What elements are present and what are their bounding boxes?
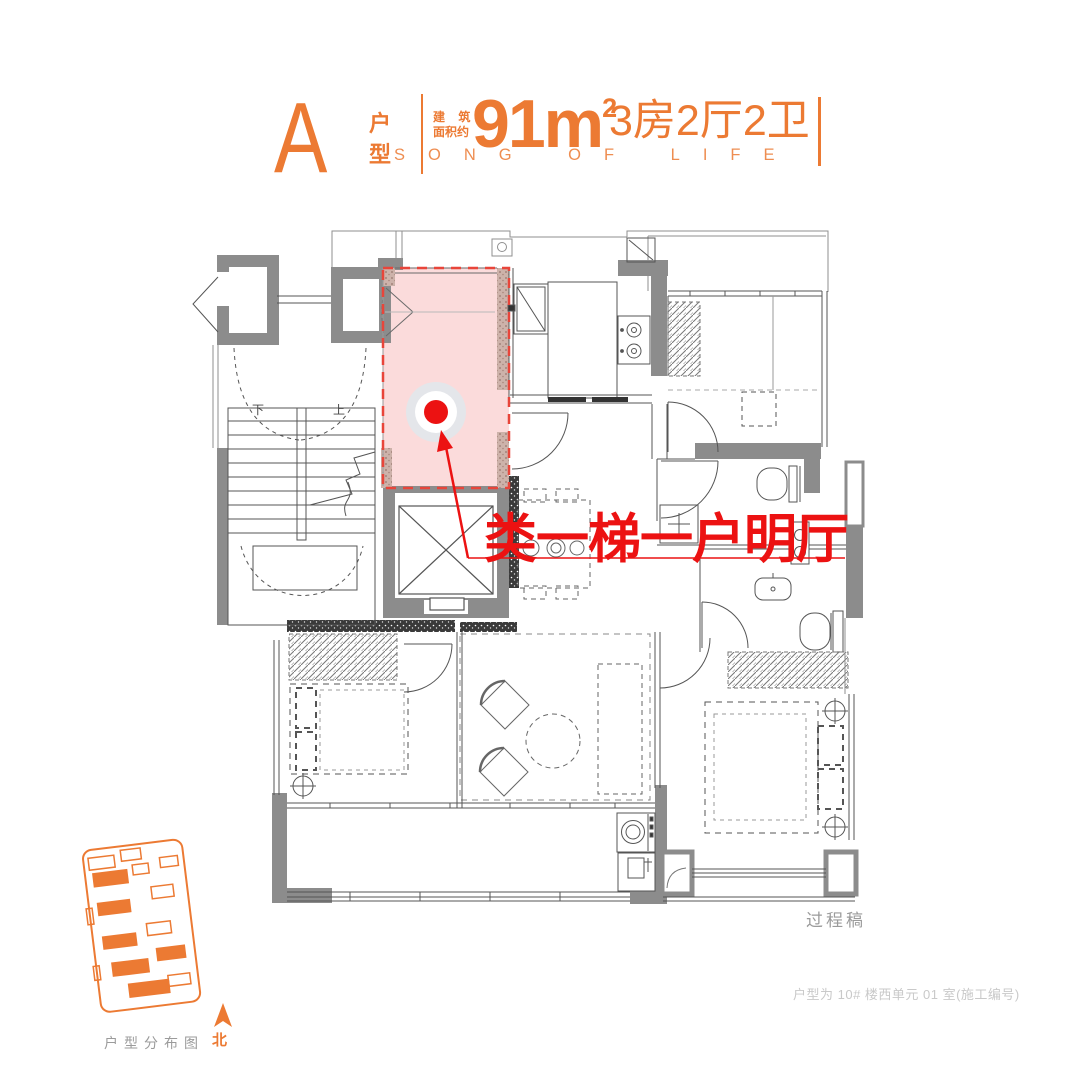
highlight-hall-fill [383, 268, 509, 488]
stair-up-label: 上 [333, 403, 345, 417]
rooms-layout-text: 3房2厅2卫 [609, 100, 810, 143]
wardrobe-icon [289, 634, 397, 680]
bedroom-bottom-left [274, 634, 452, 799]
walls [217, 255, 863, 904]
area-prefix: 建 筑 面积约 [433, 110, 475, 140]
sitemap-caption: 户型分布图 [104, 1033, 204, 1053]
area-prefix-line2: 面积约 [433, 125, 475, 140]
tv-cabinet-icon [598, 664, 642, 794]
living-room [457, 632, 650, 808]
bed-icon [290, 684, 408, 774]
unit-type-label: 户型 [369, 108, 393, 170]
north-arrow-icon [214, 1003, 232, 1027]
armchair-icon [480, 748, 528, 796]
wardrobe-icon [728, 652, 848, 688]
unit-letter: A [274, 88, 327, 188]
ceiling-fixture-icon [822, 698, 848, 724]
highlight-annotation-text: 类一梯一户明厅 [484, 497, 848, 573]
unit-location-note: 户型为 10# 楼西单元 01 室(施工编号) [793, 984, 1020, 1003]
sitemap [79, 839, 201, 1013]
ceiling-fixture-icon [822, 814, 848, 840]
north-label: 北 [212, 1029, 227, 1050]
stove-icon [618, 316, 650, 364]
round-table-icon [526, 714, 580, 768]
utility-sink-icon [618, 853, 655, 891]
area-prefix-line1: 建 筑 [433, 110, 475, 125]
bedroom-top-right [668, 291, 827, 452]
sink-icon [755, 573, 791, 600]
desk-icon [742, 392, 776, 426]
washing-machine-icon [617, 813, 655, 852]
slogan-text: SONG OF LIFE [394, 146, 798, 165]
draft-watermark: 过程稿 [806, 906, 866, 931]
staircase [228, 408, 375, 625]
armchair-icon [481, 681, 529, 729]
balcony-windows [287, 803, 855, 901]
location-dot [424, 400, 448, 424]
envelope-lines [213, 231, 828, 448]
toilet-icon [800, 611, 843, 652]
stair-down-label: 下 [252, 403, 264, 417]
ceiling-fixture-icon [290, 773, 316, 799]
laundry [617, 813, 655, 891]
bedroom-master [655, 618, 854, 840]
bed-icon [705, 702, 843, 833]
wardrobe-icon [668, 302, 700, 376]
header-divider-right [818, 97, 821, 166]
